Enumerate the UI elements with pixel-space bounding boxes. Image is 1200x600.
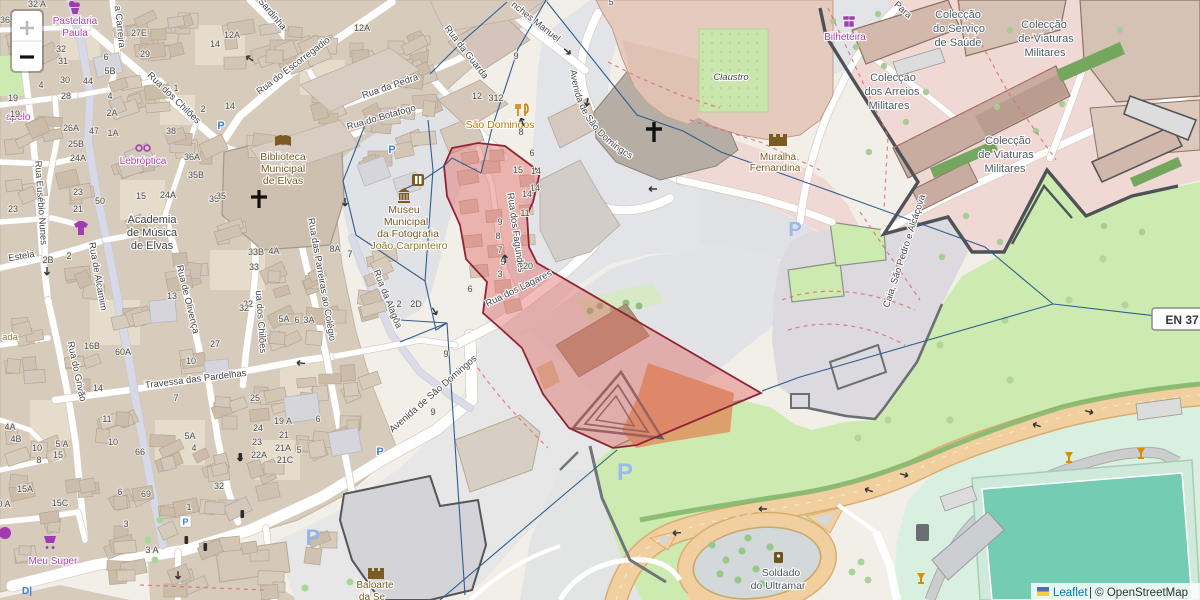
svg-text:Fernandina: Fernandina (750, 163, 801, 174)
svg-text:4B: 4B (10, 434, 21, 444)
svg-text:21A: 21A (275, 443, 291, 453)
svg-text:Soldado: Soldado (762, 567, 801, 579)
svg-text:6: 6 (529, 148, 534, 158)
svg-text:2: 2 (66, 251, 71, 261)
svg-text:2A: 2A (106, 108, 117, 118)
svg-text:5A: 5A (278, 314, 289, 324)
svg-text:6: 6 (294, 315, 299, 325)
svg-text:Lebróptica: Lebróptica (120, 156, 167, 167)
svg-text:de Elvas: de Elvas (263, 175, 303, 187)
svg-text:5B: 5B (104, 66, 115, 76)
svg-text:9: 9 (443, 349, 448, 359)
svg-text:11: 11 (520, 208, 529, 218)
svg-text:P: P (376, 446, 383, 458)
svg-text:14: 14 (210, 39, 220, 49)
svg-text:12A: 12A (224, 30, 240, 40)
svg-text:29: 29 (140, 49, 150, 59)
svg-text:33B: 33B (248, 247, 264, 257)
svg-text:P: P (217, 120, 224, 132)
svg-text:21: 21 (73, 204, 83, 214)
svg-text:dos Arreios: dos Arreios (864, 86, 920, 98)
svg-text:15A: 15A (17, 484, 33, 494)
svg-text:14: 14 (522, 189, 532, 199)
svg-text:44: 44 (83, 76, 93, 86)
svg-text:35: 35 (216, 191, 226, 201)
svg-text:P: P (388, 144, 395, 156)
svg-text:do Ultramar: do Ultramar (751, 580, 806, 592)
svg-text:1A: 1A (107, 128, 118, 138)
svg-text:32 A: 32 A (28, 0, 46, 9)
svg-text:15: 15 (53, 450, 63, 460)
svg-text:5: 5 (608, 0, 613, 7)
svg-text:32: 32 (56, 44, 66, 54)
svg-text:Colecção: Colecção (1021, 19, 1067, 31)
svg-text:19 A: 19 A (274, 416, 292, 426)
svg-text:Militares: Militares (985, 163, 1026, 175)
svg-text:21C: 21C (277, 455, 294, 465)
svg-text:Colecção: Colecção (870, 72, 916, 84)
svg-text:5A: 5A (184, 431, 195, 441)
svg-text:6: 6 (315, 414, 320, 424)
svg-text:14: 14 (225, 101, 235, 111)
svg-text:11: 11 (102, 414, 111, 424)
svg-text:7: 7 (497, 245, 502, 255)
svg-text:22A: 22A (251, 450, 267, 460)
svg-text:20: 20 (523, 261, 533, 271)
svg-text:Biblioteca: Biblioteca (260, 151, 306, 163)
svg-text:69: 69 (141, 489, 151, 499)
svg-text:26A: 26A (63, 123, 79, 133)
svg-text:| © OpenStreetMap: | © OpenStreetMap (1089, 587, 1188, 599)
svg-text:0 A: 0 A (0, 499, 11, 509)
svg-text:2B: 2B (42, 255, 53, 265)
svg-text:23: 23 (252, 437, 262, 447)
svg-text:66: 66 (135, 447, 145, 457)
svg-text:50: 50 (95, 196, 105, 206)
svg-text:Militares: Militares (1025, 47, 1066, 59)
svg-text:28: 28 (61, 91, 71, 101)
svg-text:3: 3 (497, 269, 502, 279)
svg-text:24: 24 (253, 423, 263, 433)
svg-text:32: 32 (214, 481, 224, 491)
svg-text:9: 9 (430, 407, 435, 417)
svg-text:10: 10 (108, 437, 118, 447)
svg-text:Meu Super: Meu Super (29, 556, 79, 567)
svg-text:12A: 12A (354, 23, 370, 33)
svg-text:6: 6 (467, 284, 472, 294)
svg-text:21: 21 (279, 430, 289, 440)
svg-text:33: 33 (249, 262, 259, 272)
svg-text:1: 1 (173, 83, 178, 93)
svg-text:Colecção: Colecção (935, 9, 981, 21)
svg-text:8: 8 (495, 231, 500, 241)
svg-text:9: 9 (513, 51, 518, 61)
svg-text:30: 30 (60, 75, 70, 85)
svg-text:Paula: Paula (62, 28, 88, 39)
svg-text:da Fotografia: da Fotografia (377, 228, 439, 240)
svg-text:8: 8 (518, 127, 523, 137)
svg-text:P: P (617, 459, 633, 486)
svg-text:15C: 15C (52, 498, 69, 508)
svg-text:10: 10 (186, 356, 196, 366)
svg-text:19: 19 (8, 93, 18, 103)
svg-text:Muralha: Muralha (760, 152, 797, 163)
svg-text:de Elvas: de Elvas (131, 240, 174, 252)
svg-text:32: 32 (239, 303, 249, 313)
svg-text:312: 312 (488, 93, 503, 103)
svg-text:8: 8 (36, 455, 41, 465)
svg-text:23: 23 (73, 187, 83, 197)
svg-text:6: 6 (117, 487, 122, 497)
svg-text:Baloarte: Baloarte (356, 580, 394, 591)
svg-text:Leaflet: Leaflet (1053, 587, 1088, 599)
svg-text:15: 15 (513, 165, 523, 175)
svg-text:47: 47 (89, 126, 99, 136)
svg-text:Militares: Militares (869, 100, 910, 112)
svg-text:7: 7 (347, 249, 352, 259)
svg-text:19: 19 (10, 109, 20, 119)
svg-text:60A: 60A (115, 347, 131, 357)
svg-text:4: 4 (107, 91, 112, 101)
svg-text:24A: 24A (70, 153, 86, 163)
svg-text:P: P (788, 219, 801, 241)
svg-text:de Música: de Música (127, 227, 178, 239)
svg-text:2: 2 (200, 104, 205, 114)
svg-text:João Carpinteiro: João Carpinteiro (370, 240, 447, 252)
svg-text:Claustro: Claustro (713, 72, 748, 83)
svg-text:Academia: Academia (128, 214, 178, 226)
svg-text:12: 12 (472, 91, 482, 101)
svg-text:4: 4 (38, 80, 43, 90)
svg-text:25: 25 (250, 393, 260, 403)
svg-text:4A: 4A (4, 422, 15, 432)
svg-text:14: 14 (93, 383, 103, 393)
svg-text:8A: 8A (329, 244, 340, 254)
svg-text:4A: 4A (268, 246, 279, 256)
svg-text:1: 1 (186, 502, 191, 512)
svg-text:25B: 25B (68, 139, 84, 149)
svg-text:16B: 16B (84, 341, 100, 351)
svg-text:36A: 36A (184, 152, 200, 162)
svg-text:31: 31 (58, 56, 68, 66)
svg-text:36: 36 (0, 15, 10, 25)
svg-text:15: 15 (136, 191, 146, 201)
svg-text:Museu: Museu (388, 204, 420, 216)
svg-text:38: 38 (166, 126, 176, 136)
svg-text:9: 9 (497, 217, 502, 227)
svg-text:13: 13 (167, 291, 177, 301)
svg-text:27E: 27E (131, 28, 147, 38)
svg-text:P: P (182, 517, 188, 527)
svg-text:5: 5 (296, 445, 301, 455)
svg-text:5 A: 5 A (55, 439, 68, 449)
svg-text:10: 10 (32, 443, 42, 453)
svg-text:3 A: 3 A (145, 545, 158, 555)
svg-text:de Saúde: de Saúde (934, 37, 981, 49)
svg-text:de Viaturas: de Viaturas (1018, 33, 1074, 45)
svg-text:Colecção: Colecção (985, 135, 1031, 147)
svg-text:Municipal: Municipal (384, 216, 428, 228)
svg-text:7: 7 (173, 393, 178, 403)
svg-text:6: 6 (103, 52, 108, 62)
svg-text:27: 27 (210, 339, 220, 349)
svg-text:23: 23 (8, 204, 18, 214)
svg-text:Pastelaria: Pastelaria (53, 16, 98, 27)
svg-text:EN 37: EN 37 (1165, 313, 1199, 327)
svg-text:Bilheteira: Bilheteira (824, 32, 866, 43)
svg-text:ada: ada (2, 332, 19, 343)
svg-text:35B: 35B (188, 170, 204, 180)
svg-text:3A: 3A (303, 315, 314, 325)
svg-text:14: 14 (531, 166, 541, 176)
svg-text:Municipal: Municipal (261, 163, 305, 175)
svg-text:2D: 2D (410, 299, 422, 309)
svg-text:4: 4 (191, 443, 196, 453)
svg-text:24A: 24A (160, 190, 176, 200)
svg-text:2: 2 (396, 299, 401, 309)
svg-text:P: P (306, 525, 321, 550)
svg-text:3: 3 (123, 519, 128, 529)
svg-text:da Se: da Se (359, 592, 386, 600)
svg-text:do Serviço: do Serviço (933, 23, 985, 35)
svg-text:de Viaturas: de Viaturas (978, 149, 1034, 161)
svg-text:D|: D| (22, 586, 32, 597)
